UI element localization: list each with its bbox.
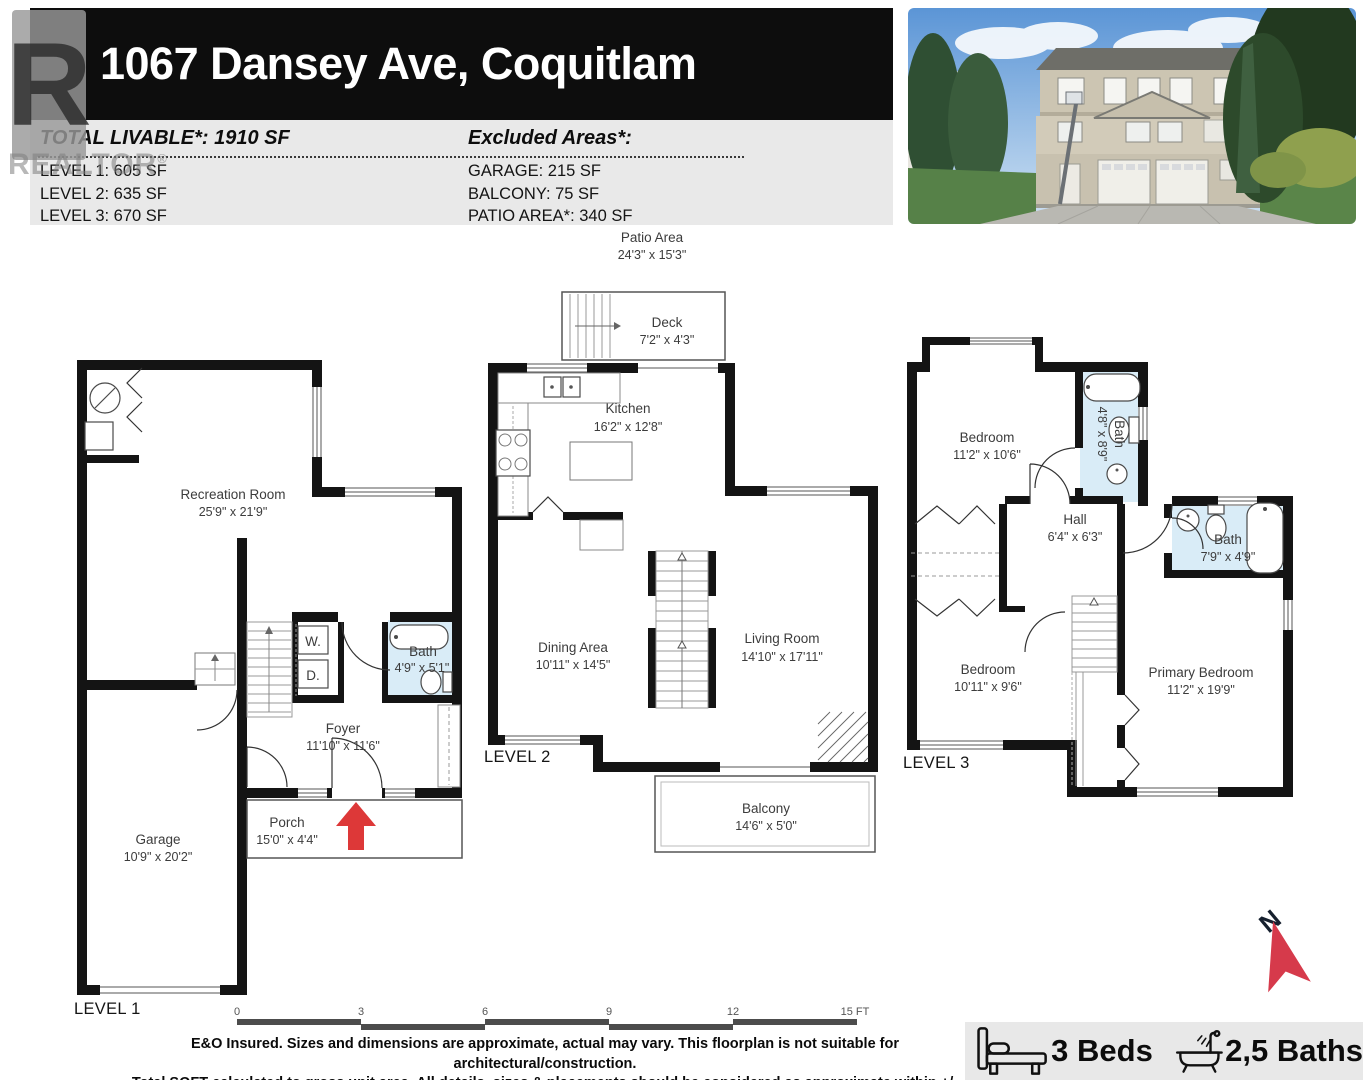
room-label-porch: Porch — [269, 815, 304, 830]
room-label-bath: Bath — [409, 644, 437, 659]
room-dims-living: 14'10" x 17'11" — [741, 650, 823, 664]
scale-ticks: 0 3 6 9 12 15 FT — [234, 1006, 870, 1018]
level3-area: LEVEL 3: 670 SF — [40, 205, 167, 228]
page-title: 1067 Dansey Ave, Coquitlam — [100, 8, 696, 120]
excluded-patio: PATIO AREA*: 340 SF — [468, 205, 632, 228]
svg-text:6: 6 — [482, 1006, 488, 1018]
north-compass: N — [1248, 902, 1333, 1012]
svg-text:Deck: Deck — [652, 315, 683, 330]
disclaimer: E&O Insured. Sizes and dimensions are ap… — [130, 1035, 960, 1080]
scale-bar: 0 3 6 9 12 15 FT — [225, 1004, 885, 1038]
furnace-closet — [85, 368, 142, 450]
svg-text:24'3" x 15'3": 24'3" x 15'3" — [618, 248, 687, 262]
baths-count: 2,5 Baths — [1225, 1033, 1363, 1069]
excluded-areas-title: Excluded Areas*: — [468, 127, 632, 150]
svg-text:Balcony: Balcony — [742, 801, 790, 816]
bed-icon — [973, 1025, 1051, 1077]
svg-text:7'2" x 4'3": 7'2" x 4'3" — [640, 333, 695, 347]
disclaimer-line2: Total SQFT calculated to gross unit area… — [130, 1074, 960, 1080]
room-dims-bath2: 7'9" x 4'9" — [1201, 550, 1256, 564]
dryer-label: D. — [306, 668, 320, 683]
scale-segments — [237, 1019, 857, 1030]
room-label-primary: Primary Bedroom — [1148, 665, 1253, 680]
stairs — [656, 551, 708, 708]
svg-text:Bath: Bath — [1112, 420, 1127, 448]
room-dims-primary: 11'2" x 19'9" — [1167, 683, 1235, 697]
bathtub-icon — [1174, 1025, 1225, 1077]
room-label-bath2: Bath — [1214, 532, 1242, 547]
floorplan-level-1: Recreation Room 25'9" x 21'9" W. D. Bath… — [60, 350, 475, 1022]
excluded-garage: GARAGE: 215 SF — [468, 160, 632, 183]
excluded-area-list: GARAGE: 215 SF BALCONY: 75 SF PATIO AREA… — [468, 160, 632, 228]
entrance-arrow — [336, 802, 376, 850]
patio-label: Patio Area 24'3" x 15'3" — [618, 230, 687, 262]
room-dims-recreation: 25'9" x 21'9" — [199, 505, 268, 519]
realtor-logo-watermark: R — [12, 10, 86, 160]
house-photo-illustration — [908, 8, 1356, 224]
room-dims-bedroom1: 11'2" x 10'6" — [953, 448, 1021, 462]
deck: Deck 7'2" x 4'3" — [562, 292, 725, 360]
room-dims-bath: 4'9" x 5'1" — [395, 661, 450, 675]
registered-mark: ® — [157, 151, 168, 166]
washer-label: W. — [305, 634, 321, 649]
header-bar: 1067 Dansey Ave, Coquitlam — [30, 8, 893, 120]
house-photo — [908, 8, 1356, 224]
room-label-kitchen: Kitchen — [605, 401, 650, 416]
floorplan-flyer-page: 1067 Dansey Ave, Coquitlam TOTAL LIVABLE… — [0, 0, 1363, 1080]
stairs — [1072, 596, 1117, 786]
svg-text:12: 12 — [727, 1006, 739, 1018]
disclaimer-line1: E&O Insured. Sizes and dimensions are ap… — [130, 1035, 960, 1074]
realtor-logo-letter: R — [6, 26, 91, 144]
realtor-watermark-text: REALTOR® — [8, 148, 168, 182]
kitchen-fixtures — [496, 373, 632, 550]
room-dims-porch: 15'0" x 4'4" — [256, 833, 318, 847]
room-dims-foyer: 11'10" x 11'6" — [306, 739, 380, 753]
beds-count: 3 Beds — [1051, 1033, 1153, 1069]
room-label-garage: Garage — [135, 832, 180, 847]
open-below-hatch — [818, 712, 868, 762]
room-label-foyer: Foyer — [326, 721, 361, 736]
room-dims-garage: 10'9" x 20'2" — [124, 850, 193, 864]
svg-text:0: 0 — [234, 1006, 240, 1018]
roof — [1036, 48, 1260, 70]
floorplan-level-3: Bath 4'8" x 8'9" Bedroom 11'2" x 10'6" H… — [895, 328, 1305, 810]
level3-label: LEVEL 3 — [903, 754, 970, 772]
room-label-bedroom1: Bedroom — [960, 430, 1015, 445]
svg-text:Patio Area: Patio Area — [621, 230, 684, 245]
room-label-bedroom2: Bedroom — [961, 662, 1016, 677]
room-dims-hall: 6'4" x 6'3" — [1048, 530, 1103, 544]
level2-area: LEVEL 2: 635 SF — [40, 183, 167, 206]
svg-text:9: 9 — [606, 1006, 612, 1018]
svg-text:3: 3 — [358, 1006, 364, 1018]
room-label-living: Living Room — [744, 631, 819, 646]
north-label: N — [1253, 904, 1287, 939]
floorplan-level-2: Patio Area 24'3" x 15'3" Deck 7'2" x 4'3… — [480, 228, 898, 870]
room-dims-dining: 10'11" x 14'5" — [536, 658, 611, 672]
level1-label: LEVEL 1 — [74, 1000, 141, 1018]
beds-baths-badge: 3 Beds 2,5 Baths — [965, 1022, 1363, 1080]
room-label-dining: Dining Area — [538, 640, 608, 655]
balcony: Balcony 14'6" x 5'0" — [655, 776, 875, 852]
excluded-balcony: BALCONY: 75 SF — [468, 183, 632, 206]
room-label-hall: Hall — [1063, 512, 1086, 527]
room-label-recreation: Recreation Room — [180, 487, 285, 502]
svg-text:15 FT: 15 FT — [841, 1006, 870, 1018]
svg-text:14'6" x 5'0": 14'6" x 5'0" — [735, 819, 797, 833]
level2-label: LEVEL 2 — [484, 748, 551, 766]
room-dims-kitchen: 16'2" x 12'8" — [594, 420, 663, 434]
room-dims-bedroom2: 10'11" x 9'6" — [954, 680, 1022, 694]
svg-text:4'8" x 8'9": 4'8" x 8'9" — [1095, 407, 1109, 462]
